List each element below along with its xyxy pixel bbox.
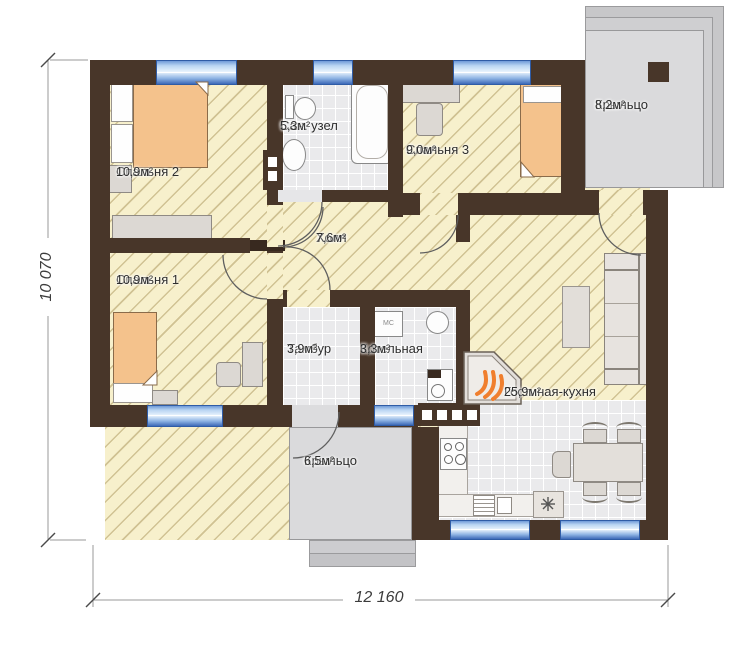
label-bedroom3-area: 9,0м² — [406, 142, 436, 158]
label-boiler-room-area: 3,3м² — [360, 341, 390, 357]
dimension-vertical-label: 10 070 — [38, 238, 56, 316]
bedroom2-bed-fold — [196, 82, 208, 95]
label-porch-bottom-area: 6,5м² — [304, 453, 334, 469]
bedroom3-door-arc — [420, 215, 458, 253]
label-hall-area: 7,6м² — [316, 230, 346, 246]
label-bedroom2-area: 10,9м² — [116, 164, 153, 180]
vestibule-exit-door-arc — [293, 412, 339, 458]
label-bathroom-area: 5,3м² — [280, 118, 310, 134]
label-vestibule-area: 3,9м² — [287, 341, 317, 357]
bedroom3-bed-fold — [521, 162, 534, 177]
dimension-horizontal-label: 12 160 — [343, 589, 415, 607]
label-bedroom1-area: 10,9м² — [116, 272, 153, 288]
front-door-arc — [599, 213, 641, 255]
label-porch-top-area: 8,2м² — [595, 97, 625, 113]
sink-asterisk-icon — [541, 497, 555, 511]
floor-plan: МС — [0, 0, 736, 658]
bedroom1-bed-fold — [143, 371, 157, 385]
bedroom1-door-arc — [223, 255, 267, 299]
label-living-kitchen-area: 25,9м² — [504, 384, 541, 400]
vestibule-door-arc — [287, 247, 330, 290]
